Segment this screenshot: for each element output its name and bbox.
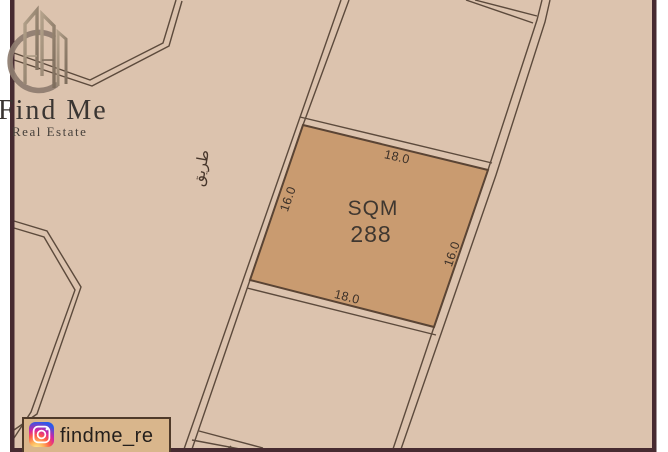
instagram-handle-box: findme_re xyxy=(23,418,170,452)
parcel-area-value: 288 xyxy=(350,221,391,247)
plot-map-canvas: 18.0 16.0 16.0 18.0 SQM 288 طريق Find Me… xyxy=(0,0,668,452)
logo-title: Find Me xyxy=(0,95,108,126)
instagram-handle: findme_re xyxy=(60,425,153,447)
frame-right xyxy=(652,0,657,452)
instagram-icon xyxy=(29,422,54,447)
listing-map-image: 18.0 16.0 16.0 18.0 SQM 288 طريق Find Me… xyxy=(0,0,668,452)
logo-subtitle: Real Estate xyxy=(12,124,87,139)
parcel-area-label: SQM xyxy=(348,197,399,220)
